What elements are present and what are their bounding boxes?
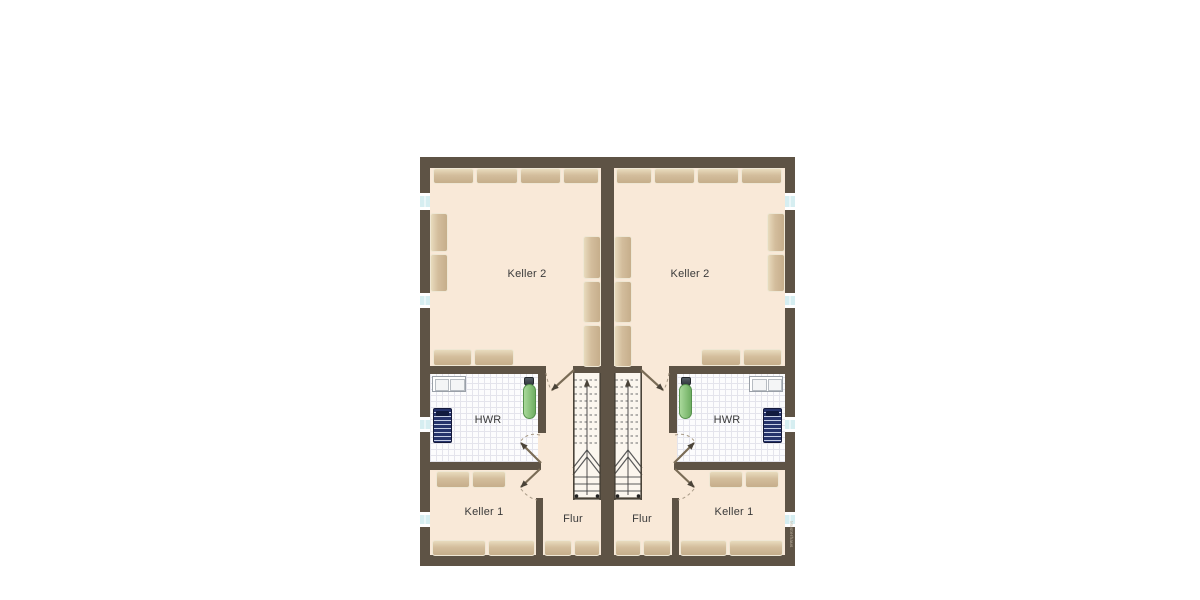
shelf-block bbox=[614, 325, 632, 367]
laundry-sink-right bbox=[749, 376, 783, 392]
shelf-block bbox=[745, 471, 779, 488]
shelf-block bbox=[520, 168, 561, 184]
shelf-block bbox=[697, 168, 739, 184]
room-label-flur-right: Flur bbox=[632, 513, 652, 525]
shelf-block bbox=[436, 471, 470, 488]
shelf-block bbox=[433, 168, 474, 184]
shelf-block bbox=[680, 540, 727, 556]
window-right-2 bbox=[785, 293, 795, 308]
watermark-text: Musterhaus bbox=[786, 521, 794, 555]
room-label-hwr-right: HWR bbox=[714, 414, 741, 426]
wall-stair-top-left bbox=[573, 366, 601, 373]
room-label-keller2-left: Keller 2 bbox=[508, 268, 547, 280]
washing-machine-left bbox=[433, 408, 452, 443]
shelf-block bbox=[583, 236, 601, 279]
exterior-wall-right bbox=[785, 157, 795, 566]
shelf-block bbox=[472, 471, 506, 488]
shelf-block bbox=[743, 349, 782, 366]
shelf-block bbox=[583, 281, 601, 323]
ironing-board-right bbox=[679, 384, 692, 419]
shelf-block bbox=[767, 254, 785, 292]
wall-hwr-bottom-right bbox=[674, 462, 795, 470]
shelf-block bbox=[654, 168, 695, 184]
window-left-4 bbox=[420, 512, 430, 527]
washing-machine-right bbox=[763, 408, 782, 443]
shelf-block bbox=[583, 325, 601, 367]
wall-stair-top-right bbox=[614, 366, 642, 373]
room-label-keller2-right: Keller 2 bbox=[671, 268, 710, 280]
window-right-3 bbox=[785, 417, 795, 432]
wall-keller1-flur-left bbox=[536, 498, 543, 555]
shelf-block bbox=[432, 540, 486, 556]
window-left-2 bbox=[420, 293, 430, 308]
window-left-3 bbox=[420, 417, 430, 432]
window-right-1 bbox=[785, 193, 795, 210]
shelf-block bbox=[430, 254, 448, 292]
wall-keller1-flur-right bbox=[672, 498, 679, 555]
shelf-block bbox=[643, 540, 671, 556]
shelf-block bbox=[741, 168, 782, 184]
shelf-block bbox=[701, 349, 741, 366]
shelf-block bbox=[430, 213, 448, 252]
shelf-block bbox=[563, 168, 599, 184]
shelf-block bbox=[614, 281, 632, 323]
shelf-block bbox=[767, 213, 785, 252]
shelf-block bbox=[616, 168, 652, 184]
room-label-hwr-left: HWR bbox=[475, 414, 502, 426]
room-label-keller1-left: Keller 1 bbox=[465, 506, 504, 518]
room-label-flur-left: Flur bbox=[563, 513, 583, 525]
wall-hwr-top-right bbox=[669, 366, 795, 374]
shelf-block bbox=[574, 540, 600, 556]
shelf-block bbox=[474, 349, 514, 366]
wall-hwr-side-right bbox=[669, 366, 677, 433]
exterior-wall-bottom bbox=[420, 555, 795, 566]
shelf-block bbox=[488, 540, 535, 556]
laundry-sink-left bbox=[432, 376, 466, 392]
plan-canvas: Keller 2 Keller 2 HWR HWR Keller 1 Kelle… bbox=[0, 0, 1200, 600]
shelf-block bbox=[433, 349, 472, 366]
ironing-board-left bbox=[523, 384, 536, 419]
window-left-1 bbox=[420, 193, 430, 210]
party-wall bbox=[601, 168, 614, 555]
wall-hwr-side-left bbox=[538, 366, 546, 433]
wall-hwr-bottom-left bbox=[420, 462, 541, 470]
room-label-keller1-right: Keller 1 bbox=[715, 506, 754, 518]
shelf-block bbox=[476, 168, 518, 184]
shelf-block bbox=[709, 471, 743, 488]
shelf-block bbox=[544, 540, 572, 556]
shelf-block bbox=[614, 236, 632, 279]
exterior-wall-top bbox=[420, 157, 795, 168]
shelf-block bbox=[729, 540, 783, 556]
shelf-block bbox=[615, 540, 641, 556]
wall-hwr-top-left bbox=[420, 366, 546, 374]
exterior-wall-left bbox=[420, 157, 430, 566]
